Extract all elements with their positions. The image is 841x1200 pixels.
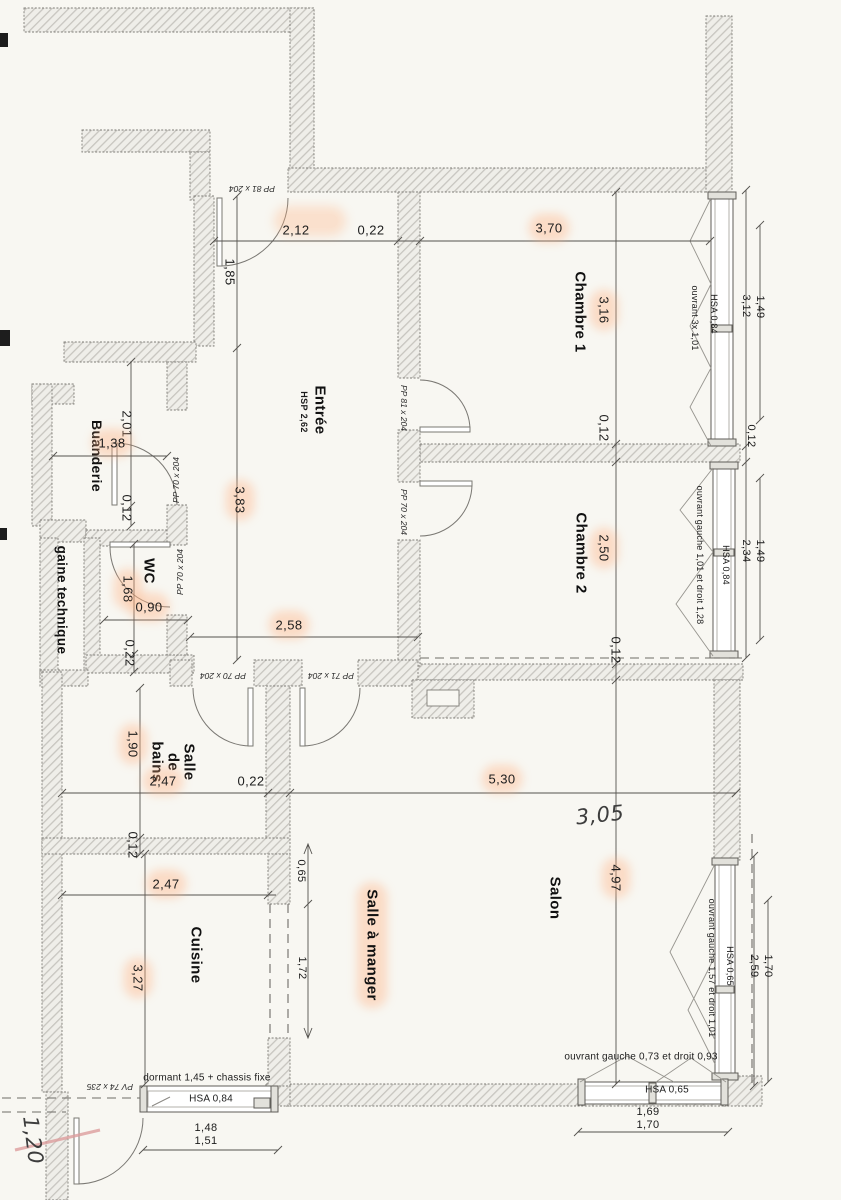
window-label-chambre2-hsa: HSA 0,84 xyxy=(721,545,731,585)
dim-label: 3,16 xyxy=(597,297,612,324)
wall xyxy=(266,686,290,842)
door-label-sam: PP 71 x 204 xyxy=(308,671,354,681)
wall xyxy=(268,1038,290,1086)
wall xyxy=(398,430,420,482)
wall xyxy=(398,192,420,378)
dim-label: 1,68 xyxy=(121,576,136,603)
dim-label: 0,22 xyxy=(123,640,138,667)
window-block xyxy=(140,1086,147,1112)
room-label-salle-a-manger: Salle à manger xyxy=(364,889,381,1001)
wall xyxy=(46,1092,68,1200)
door-leaf xyxy=(217,198,222,266)
dim-label: 2,47 xyxy=(153,877,180,892)
door-leaf xyxy=(300,688,305,746)
dim-label: 1,70 xyxy=(762,954,774,977)
scan-mark xyxy=(0,330,10,346)
dim-label: 5,30 xyxy=(489,772,516,787)
door-leaf xyxy=(420,481,472,486)
wall xyxy=(194,196,214,346)
wall xyxy=(290,8,314,182)
wall xyxy=(82,130,210,152)
door-arc-sdb xyxy=(193,688,251,746)
dim-label: 0,12 xyxy=(597,415,612,442)
window-block xyxy=(712,858,738,865)
dim-label: 1,72 xyxy=(296,956,308,979)
dim-label: 2,59 xyxy=(748,954,760,977)
wall xyxy=(288,168,710,192)
wall xyxy=(268,854,290,904)
door-leaf xyxy=(112,443,117,505)
window-block xyxy=(578,1079,585,1105)
window-label-salon-est-ouvrant: ouvrant gauche 1,57 et droit 1,01 xyxy=(707,899,717,1038)
dim-line xyxy=(210,237,714,245)
wall xyxy=(24,8,314,32)
door-label-chambre1: PP 81 x 204 xyxy=(399,385,409,431)
dim-label: 0,12 xyxy=(745,424,757,447)
room-label-wc: WC xyxy=(141,558,158,584)
window-block xyxy=(721,1079,728,1105)
door-arc-loggia xyxy=(77,1118,143,1184)
window-label-cuisine-hsa: HSA 0,84 xyxy=(189,1094,233,1105)
dim-label: 2,01 xyxy=(120,411,135,438)
dim-label: 0,22 xyxy=(358,223,385,238)
wall xyxy=(167,615,187,655)
room-label-entree-hsp: HSP 2,62 xyxy=(299,391,309,433)
duct-opening xyxy=(427,690,459,706)
dim-label: 3,83 xyxy=(233,487,248,514)
dim-label: 2,47 xyxy=(150,774,177,789)
room-label-entree: Entrée xyxy=(312,385,329,434)
dim-label: 1,38 xyxy=(99,436,126,451)
window-label-chambre1-ouvrant: ouvrant 3x 1,01 xyxy=(690,285,700,350)
window-block xyxy=(271,1086,278,1112)
dim-label: 1,85 xyxy=(223,259,238,286)
door-label-loggia: PV 74 x 235 xyxy=(87,1082,133,1092)
window-label-cuisine-dormant: dormant 1,45 + chassis fixe xyxy=(143,1073,270,1084)
door-arc-chambre2 xyxy=(420,484,472,536)
dim-label: 0,65 xyxy=(295,859,307,882)
handwritten-note-305: 3,05 xyxy=(575,801,626,830)
casement-triangles xyxy=(580,198,726,1082)
dim-label: 3,70 xyxy=(536,221,563,236)
window-label-chambre2-ouvrant: ouvrant gauche 1,01 et droit 1,28 xyxy=(695,486,705,625)
dim-label: 3,12 xyxy=(740,294,752,317)
window-label-salon-est-hsa: HSA 0,65 xyxy=(725,946,735,986)
dim-label: 1,48 xyxy=(194,1122,217,1134)
room-label-cuisine: Cuisine xyxy=(188,927,205,984)
dim-label: 1,90 xyxy=(126,731,141,758)
wall xyxy=(358,660,418,686)
window-block xyxy=(708,439,736,446)
dim-label: 1,49 xyxy=(754,295,766,318)
door-label-chambre2: PP 70 x 204 xyxy=(399,489,409,535)
wall xyxy=(167,362,187,410)
door-label-entrance: PP 81 x 204 xyxy=(229,184,275,194)
wall xyxy=(706,16,732,192)
dim-label: 1,70 xyxy=(636,1119,659,1131)
dim-label: 3,27 xyxy=(131,965,146,992)
dim-line xyxy=(139,1146,282,1154)
room-label-salon: Salon xyxy=(547,877,564,920)
dim-line xyxy=(58,891,276,899)
door-leaf xyxy=(110,542,170,547)
dim-label: 0,12 xyxy=(120,495,135,522)
room-label-gaine-technique: gaine technique xyxy=(55,546,70,655)
dim-label: 4,97 xyxy=(609,865,624,892)
dim-label: 2,58 xyxy=(276,618,303,633)
dim-label: 0,90 xyxy=(136,600,163,615)
wall xyxy=(42,838,290,854)
dim-label: 1,51 xyxy=(194,1135,217,1147)
scan-mark xyxy=(0,33,8,47)
door-leaf xyxy=(420,427,470,432)
wall xyxy=(420,444,740,462)
scan-artifacts xyxy=(0,33,10,540)
window-label-salon-sud-ouvrant: ouvrant gauche 0,73 et droit 0,93 xyxy=(564,1052,717,1063)
dim-label: 1,49 xyxy=(754,539,766,562)
dim-line xyxy=(58,789,740,797)
room-label-chambre1: Chambre 1 xyxy=(572,271,589,352)
window-label-salon-sud-hsa: HSA 0,65 xyxy=(645,1085,689,1096)
door-arc-sam xyxy=(302,688,360,746)
wall xyxy=(32,384,52,526)
wall xyxy=(714,680,740,860)
wall xyxy=(167,505,187,545)
door-arc-chambre1 xyxy=(420,380,470,430)
window-label-chambre1-hsa: HSA 0,84 xyxy=(709,294,719,334)
door-arc-entrance xyxy=(220,198,288,266)
door-label-wc: PP 70 x 204 xyxy=(175,549,185,595)
window-block xyxy=(708,192,736,199)
dim-line xyxy=(49,452,171,460)
wall xyxy=(398,540,420,666)
dim-label: 0,12 xyxy=(609,637,624,664)
wall xyxy=(254,660,302,686)
wall xyxy=(190,152,210,200)
wall xyxy=(84,538,100,672)
dim-line xyxy=(764,896,772,1086)
wall xyxy=(170,660,192,686)
room-label-buanderie: Buanderie xyxy=(89,420,105,492)
scan-mark xyxy=(0,528,7,540)
opening-dashed xyxy=(270,904,288,1038)
dim-line xyxy=(756,221,764,424)
door-leaf xyxy=(248,688,253,746)
dim-label: 2,50 xyxy=(597,535,612,562)
dim-label: 2,12 xyxy=(283,223,310,238)
floor-plan-page: Entrée HSP 2,62 Chambre 1 Chambre 2 Salo… xyxy=(0,0,841,1200)
window-block xyxy=(710,462,738,469)
windows-geometry xyxy=(140,192,738,1112)
wall xyxy=(64,342,196,362)
door-leaf xyxy=(74,1118,79,1184)
wall xyxy=(417,664,743,680)
door-label-sdb: PP 70 x 204 xyxy=(200,671,246,681)
wall xyxy=(42,672,62,1092)
dim-label: 0,22 xyxy=(238,774,265,789)
window-block xyxy=(710,651,738,658)
window-block xyxy=(716,986,734,993)
dim-line xyxy=(186,633,422,641)
loggia-dashed xyxy=(2,1098,140,1112)
door-label-buanderie: PP 70 x 204 xyxy=(171,457,181,503)
window-block xyxy=(254,1098,270,1108)
dim-label: 0,12 xyxy=(126,832,141,859)
dim-label: 2,34 xyxy=(740,539,752,562)
room-label-chambre2: Chambre 2 xyxy=(573,512,590,593)
dim-label: 1,69 xyxy=(636,1106,659,1118)
dashed-lines xyxy=(2,658,752,1112)
